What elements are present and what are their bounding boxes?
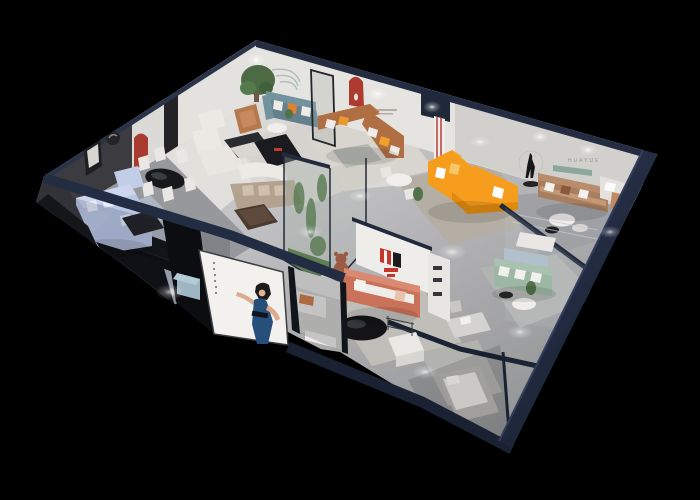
svg-text:HUAYUE: HUAYUE: [568, 158, 600, 164]
